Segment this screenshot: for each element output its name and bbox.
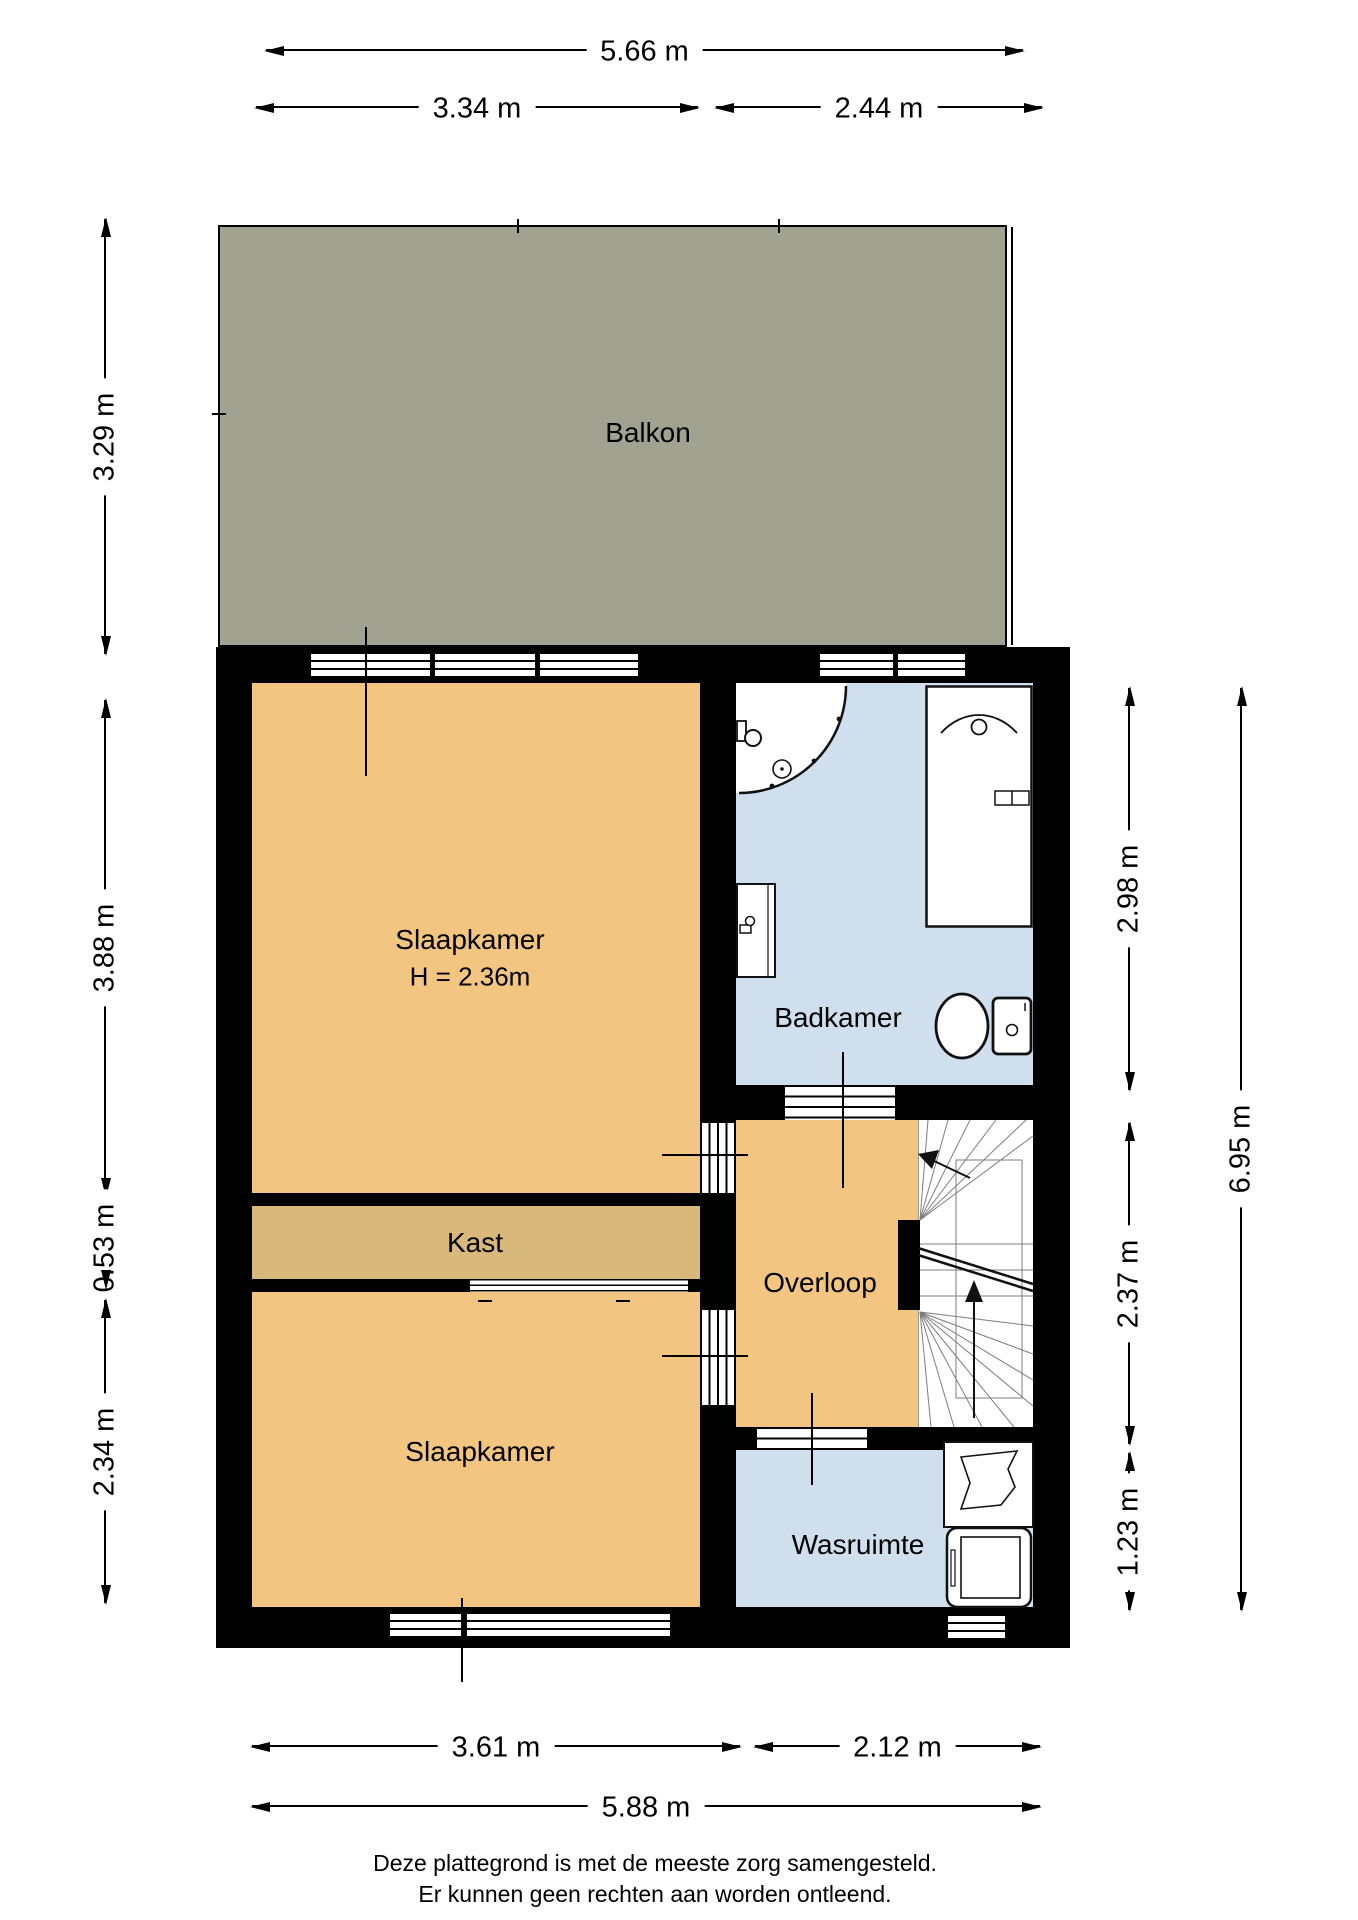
dim-label: 3.61 m [438,1732,555,1765]
balcony-railing-line [1011,227,1013,645]
door-tick [478,1300,492,1302]
window-divider [535,652,540,678]
dim-label: 3.34 m [419,93,536,126]
dim-right-laundry: 1.23 m [1128,1453,1130,1610]
dim-bottom-bedroom: 3.61 m [252,1745,740,1747]
door-bedroom2-landing [700,1310,736,1405]
window-divider [893,652,898,678]
stairs-icon [918,1120,1033,1427]
door-tick [811,1393,813,1485]
dim-left-balcony: 3.29 m [104,219,106,654]
door-tick [662,1355,748,1357]
balcony-railing-tick [778,219,780,233]
washbasin-icon [736,883,776,978]
disclaimer-line2: Er kunnen geen rechten aan worden ontlee… [373,1879,937,1910]
washing-machine-icon [944,1526,1034,1610]
door-tick [662,1154,748,1156]
dim-right-landing: 2.37 m [1128,1123,1130,1444]
room-label-badkamer: Badkamer [774,1002,902,1034]
room-label-slaapkamer-beneden: Slaapkamer [405,1436,554,1468]
balcony-door-tick [365,627,367,776]
door-bathroom [785,1085,895,1120]
dim-label: 0.53 m [89,1190,122,1307]
balcony-door-window [311,652,638,678]
dim-left-bedroom: 3.88 m [104,700,106,1196]
toilet-icon [933,990,1033,1062]
shower-icon [736,683,850,800]
dim-top-total: 5.66 m [266,49,1023,51]
room-label-balkon: Balkon [605,417,691,449]
room-label-slaapkamer-boven: Slaapkamer [395,924,544,956]
bathtub-icon [925,685,1033,928]
dim-label: 2.98 m [1113,831,1146,948]
dim-right-bathroom: 2.98 m [1128,688,1130,1090]
door-tick [842,1052,844,1188]
dim-label: 2.34 m [89,1393,122,1510]
room-label-kast: Kast [447,1227,503,1259]
balcony-railing-tick [212,413,226,415]
bedroom-window [390,1612,670,1638]
dim-top-left: 3.34 m [256,106,698,108]
laundry-window [948,1614,1005,1638]
bedroom-window-tick [461,1598,463,1682]
dim-left-bedroom2: 2.34 m [104,1300,106,1603]
closet-sliding-door [470,1279,688,1292]
door-tick [616,1300,630,1302]
dim-label: 1.23 m [1113,1473,1146,1590]
disclaimer: Deze plattegrond is met de meeste zorg s… [373,1848,937,1910]
dim-label: 6.95 m [1225,1091,1258,1208]
room-height-note: H = 2.36m [410,962,531,993]
window-divider [430,652,435,678]
laundry-sink-icon [943,1441,1034,1528]
dim-left-closet: 0.53 m [104,1208,106,1288]
dim-label: 2.44 m [821,93,938,126]
room-label-overloop: Overloop [763,1267,877,1299]
dim-label: 2.12 m [839,1732,956,1765]
dim-bottom-laundry: 2.12 m [755,1745,1040,1747]
dim-top-right: 2.44 m [716,106,1042,108]
bathroom-window [820,652,965,678]
floor-plan-page: 5.66 m 3.34 m 2.44 m 3.29 m 3.88 m 0.53 … [0,0,1358,1920]
room-label-wasruimte: Wasruimte [792,1529,925,1561]
dim-label: 5.66 m [586,36,703,69]
dim-label: 3.88 m [89,890,122,1007]
dim-right-total: 6.95 m [1240,688,1242,1610]
dim-label: 2.37 m [1113,1225,1146,1342]
dim-bottom-total: 5.88 m [252,1805,1040,1807]
disclaimer-line1: Deze plattegrond is met de meeste zorg s… [373,1848,937,1879]
stair-stub-wall [898,1220,920,1310]
door-bedroom-landing [700,1123,736,1193]
dim-label: 5.88 m [588,1792,705,1825]
dim-label: 3.29 m [89,378,122,495]
balcony-railing-tick [517,219,519,233]
